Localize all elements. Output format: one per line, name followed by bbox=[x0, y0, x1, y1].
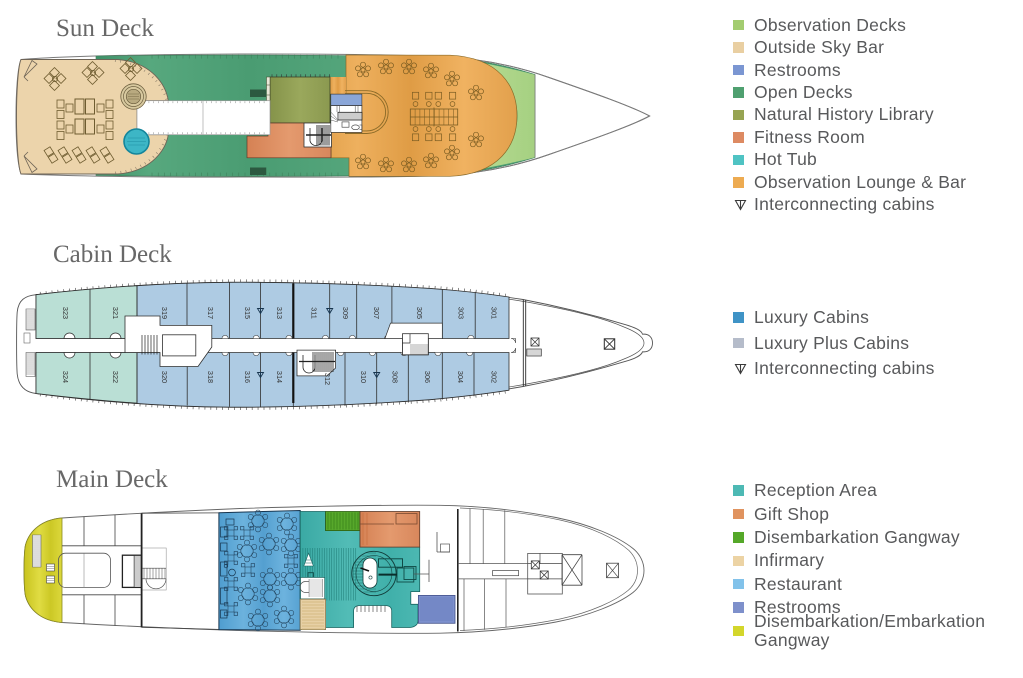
svg-text:303: 303 bbox=[457, 307, 466, 319]
svg-text:316: 316 bbox=[243, 371, 252, 383]
svg-text:320: 320 bbox=[160, 371, 169, 383]
svg-text:307: 307 bbox=[372, 307, 381, 319]
svg-text:301: 301 bbox=[490, 307, 499, 319]
svg-text:305: 305 bbox=[415, 307, 424, 319]
svg-text:318: 318 bbox=[206, 371, 215, 383]
svg-text:314: 314 bbox=[275, 371, 284, 383]
svg-text:315: 315 bbox=[243, 307, 252, 319]
svg-text:324: 324 bbox=[61, 371, 70, 383]
svg-text:309: 309 bbox=[341, 307, 350, 319]
svg-text:323: 323 bbox=[61, 307, 70, 319]
svg-text:312: 312 bbox=[323, 373, 332, 385]
svg-text:304: 304 bbox=[456, 371, 465, 383]
svg-text:321: 321 bbox=[111, 307, 120, 319]
svg-text:317: 317 bbox=[206, 307, 215, 319]
svg-text:313: 313 bbox=[275, 307, 284, 319]
svg-text:310: 310 bbox=[359, 371, 368, 383]
svg-text:319: 319 bbox=[160, 307, 169, 319]
svg-text:306: 306 bbox=[423, 371, 432, 383]
svg-text:308: 308 bbox=[391, 371, 400, 383]
svg-text:322: 322 bbox=[111, 371, 120, 383]
svg-text:311: 311 bbox=[310, 307, 319, 319]
svg-text:302: 302 bbox=[490, 371, 499, 383]
